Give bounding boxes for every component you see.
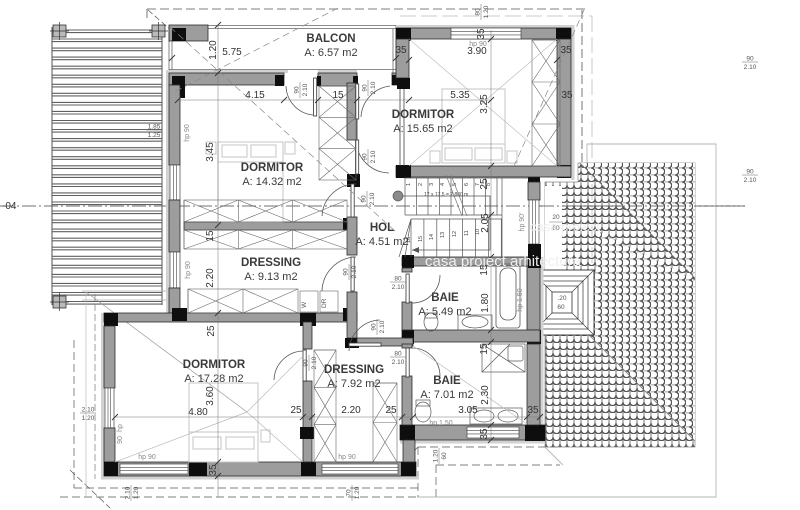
svg-text:4.80: 4.80 [188, 407, 208, 418]
svg-text:35: 35 [479, 428, 490, 440]
svg-text:hp 1.50: hp 1.50 [429, 420, 452, 427]
svg-text:2.10: 2.10 [125, 486, 132, 499]
svg-text:2.10: 2.10 [311, 356, 318, 369]
svg-text:80: 80 [394, 276, 402, 283]
svg-text:90: 90 [361, 195, 368, 203]
svg-text:casa proiect arhitectura: casa proiect arhitectura [425, 253, 582, 270]
svg-text:DR: DR [321, 298, 328, 308]
svg-text:70: 70 [346, 489, 353, 497]
svg-text:90: 90 [362, 84, 369, 92]
svg-text:90: 90 [303, 359, 310, 367]
svg-text:2.10: 2.10 [392, 359, 405, 366]
svg-text:35: 35 [527, 405, 539, 416]
svg-text:2.30: 2.30 [480, 385, 491, 405]
svg-text:BAIE: BAIE [431, 292, 459, 304]
svg-text:1.20: 1.20 [133, 486, 140, 499]
svg-text:90: 90 [362, 153, 369, 161]
svg-text:35: 35 [476, 28, 487, 40]
svg-text:3.45: 3.45 [205, 142, 216, 162]
svg-text:3: 3 [429, 183, 435, 186]
svg-text:35: 35 [395, 45, 407, 56]
svg-text:-04: -04 [2, 201, 17, 212]
svg-text:A: 17.28 m2: A: 17.28 m2 [184, 373, 243, 385]
svg-text:5.75: 5.75 [222, 47, 242, 58]
svg-text:15: 15 [205, 230, 216, 242]
svg-text:casa proiect: casa proiect [530, 219, 600, 234]
svg-text:90: 90 [343, 268, 350, 276]
svg-text:14: 14 [429, 234, 435, 240]
svg-text:BAIE: BAIE [433, 375, 461, 387]
svg-text:15: 15 [418, 236, 424, 242]
svg-text:2.10: 2.10 [392, 284, 405, 291]
svg-text:3.25: 3.25 [479, 94, 490, 114]
svg-text:.20: .20 [557, 295, 566, 302]
svg-text:A: 15.65 m2: A: 15.65 m2 [393, 123, 452, 135]
svg-text:4.15: 4.15 [245, 90, 265, 101]
svg-text:W: W [301, 301, 308, 308]
svg-text:1.20: 1.20 [483, 5, 490, 18]
svg-text:60: 60 [557, 304, 565, 311]
svg-text:hp 90: hp 90 [185, 261, 192, 279]
svg-text:4: 4 [440, 183, 446, 186]
svg-text:hp 90: hp 90 [338, 454, 356, 461]
svg-text:2: 2 [418, 183, 424, 186]
svg-text:90: 90 [294, 86, 301, 94]
svg-text:2.10: 2.10 [351, 265, 358, 278]
svg-text:DORMITOR: DORMITOR [392, 109, 455, 121]
svg-text:11: 11 [464, 230, 470, 236]
svg-text:2.10: 2.10 [744, 64, 757, 71]
svg-text:1.20: 1.20 [354, 486, 361, 499]
svg-text:A: 6.57 m2: A: 6.57 m2 [304, 47, 357, 59]
svg-text:2.10: 2.10 [370, 150, 377, 163]
svg-text:90: 90 [746, 56, 754, 63]
svg-text:13: 13 [440, 232, 446, 238]
svg-text:60: 60 [441, 452, 448, 460]
svg-text:17 x 17,5 = 2,800 m: 17 x 17,5 = 2,800 m [424, 192, 468, 198]
svg-text:5.35: 5.35 [450, 90, 470, 101]
svg-text:2.05: 2.05 [480, 213, 491, 233]
svg-text:80: 80 [475, 8, 482, 16]
svg-text:25: 25 [290, 405, 302, 416]
svg-text:90: 90 [746, 169, 754, 176]
svg-text:A: 5.49 m2: A: 5.49 m2 [418, 306, 471, 318]
svg-text:2.10: 2.10 [379, 320, 386, 333]
svg-text:12: 12 [452, 231, 458, 237]
svg-text:A: 7.01 m2: A: 7.01 m2 [420, 389, 473, 401]
svg-text:2.20: 2.20 [341, 405, 361, 416]
svg-text:HOL: HOL [370, 222, 394, 234]
svg-text:hp 90: hp 90 [469, 41, 487, 48]
svg-text:1: 1 [406, 183, 412, 186]
svg-text:1.20: 1.20 [208, 40, 219, 60]
svg-text:3.60: 3.60 [205, 386, 216, 406]
svg-text:hp 90': hp 90' [519, 213, 526, 232]
svg-text:hp: hp [117, 424, 124, 432]
svg-text:hp 1.50: hp 1.50 [517, 288, 524, 311]
svg-text:DRESSING: DRESSING [324, 364, 384, 376]
svg-text:2.10: 2.10 [744, 177, 757, 184]
svg-text:15: 15 [332, 90, 344, 101]
svg-text:25: 25 [479, 178, 490, 190]
svg-text:BALCON: BALCON [306, 33, 355, 45]
svg-text:15: 15 [479, 343, 490, 355]
svg-text:90: 90 [371, 323, 378, 331]
svg-text:25: 25 [385, 405, 397, 416]
svg-text:80: 80 [394, 351, 402, 358]
svg-text:2.10: 2.10 [302, 83, 309, 96]
svg-text:2.10: 2.10 [82, 407, 95, 414]
svg-text:A: 14.32 m2: A: 14.32 m2 [242, 176, 301, 188]
svg-text:DORMITOR: DORMITOR [183, 359, 246, 371]
svg-text:2.10: 2.10 [369, 192, 376, 205]
svg-text:35: 35 [560, 45, 572, 56]
svg-text:1.20: 1.20 [433, 449, 440, 462]
svg-text:1.25: 1.25 [148, 132, 161, 139]
svg-text:35: 35 [561, 90, 573, 101]
svg-text:90: 90 [117, 436, 124, 444]
svg-text:A: 7.92 m2: A: 7.92 m2 [327, 378, 380, 390]
svg-text:A: 9.13 m2: A: 9.13 m2 [244, 271, 297, 283]
svg-text:hp 90: hp 90 [138, 454, 156, 461]
svg-text:25: 25 [206, 325, 217, 337]
svg-text:2.10: 2.10 [370, 81, 377, 94]
svg-text:3.05: 3.05 [458, 405, 478, 416]
svg-text:DRESSING: DRESSING [241, 257, 301, 269]
svg-text:35: 35 [208, 464, 219, 476]
svg-text:1.20: 1.20 [82, 415, 95, 422]
svg-text:A: 4.51 m2: A: 4.51 m2 [355, 236, 408, 248]
svg-text:1.80: 1.80 [480, 293, 491, 313]
svg-text:2.20: 2.20 [205, 268, 216, 288]
svg-text:1.85: 1.85 [148, 124, 161, 131]
svg-text:hp 90: hp 90 [184, 124, 191, 142]
svg-text:6: 6 [464, 183, 470, 186]
svg-text:5: 5 [452, 183, 458, 186]
svg-text:DORMITOR: DORMITOR [241, 162, 304, 174]
